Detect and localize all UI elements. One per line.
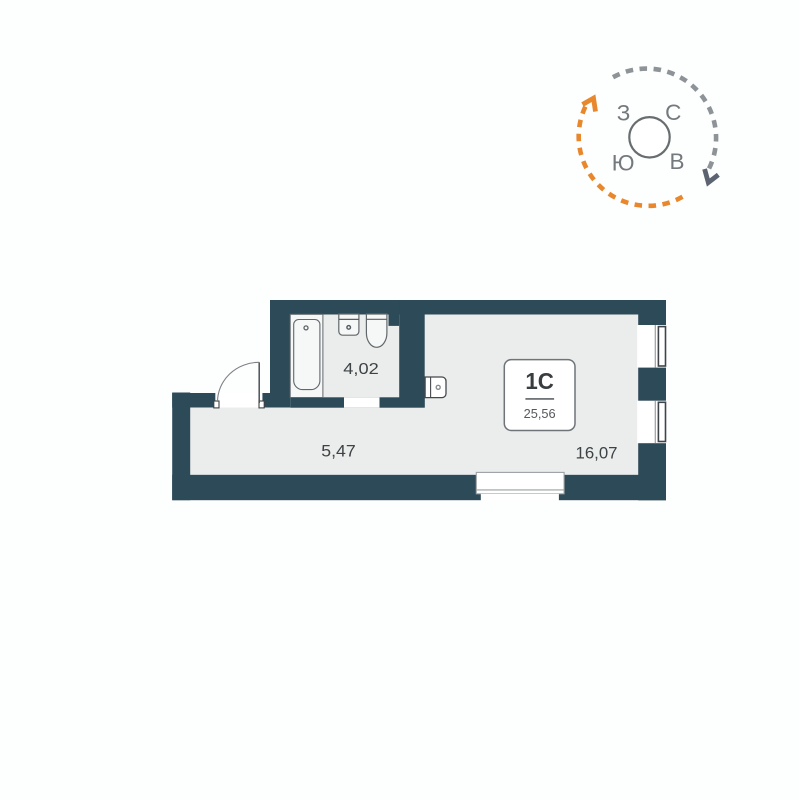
svg-text:1С: 1С [525,368,554,394]
svg-text:4,02: 4,02 [343,361,379,378]
svg-text:5,47: 5,47 [321,441,356,460]
svg-text:16,07: 16,07 [576,443,618,462]
svg-text:25,56: 25,56 [524,407,556,421]
svg-text:Ю: Ю [612,150,635,175]
svg-text:С: С [665,100,681,125]
svg-text:З: З [617,101,631,126]
svg-text:В: В [669,149,684,174]
